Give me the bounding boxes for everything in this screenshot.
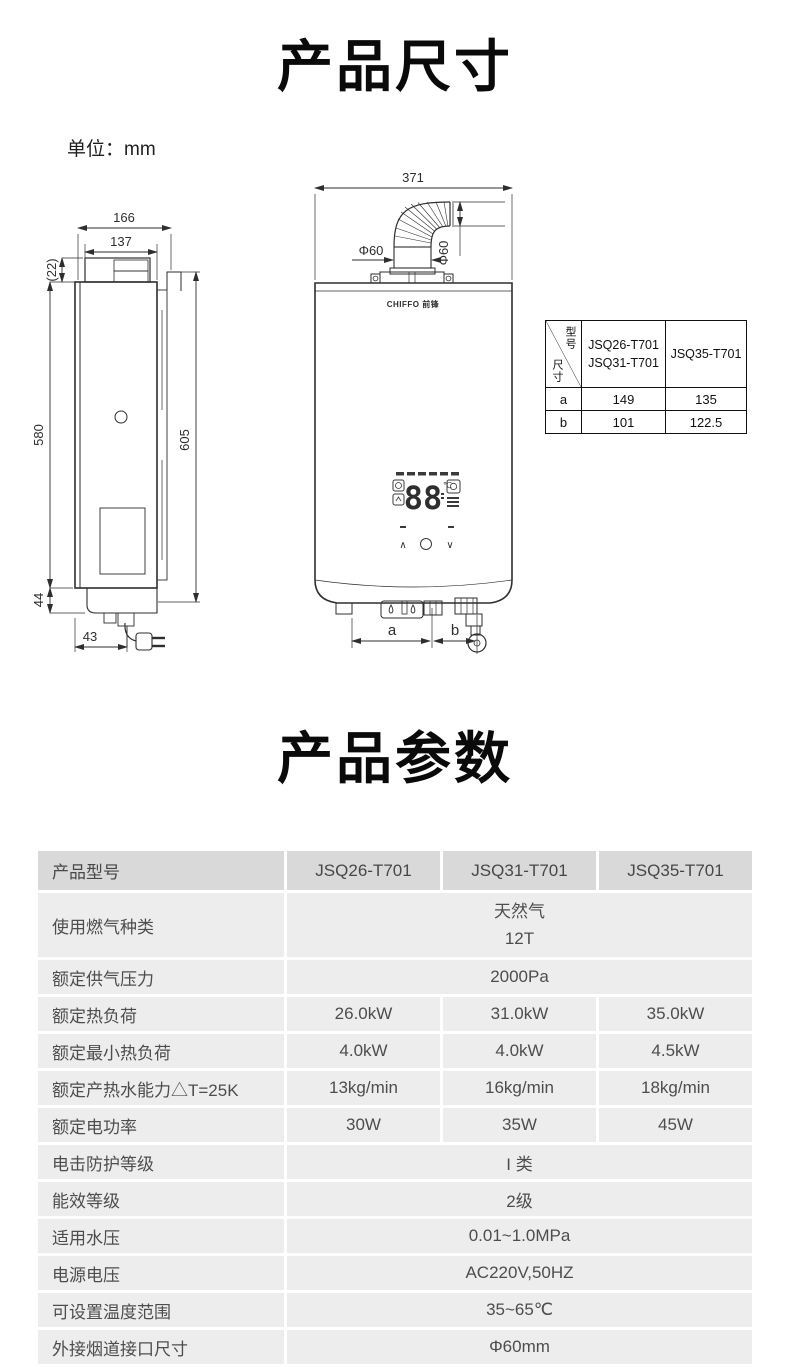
water-drop-icon bbox=[389, 605, 393, 613]
spec-header-label: 产品型号 bbox=[38, 851, 284, 890]
spec-row-label: 额定最小热负荷 bbox=[38, 1034, 284, 1068]
spec-row-value: Φ60mm bbox=[287, 1330, 752, 1364]
section-title-parameters: 产品参数 bbox=[0, 714, 790, 795]
spec-row-value: 4.0kW bbox=[443, 1034, 596, 1068]
flame-icon bbox=[393, 494, 404, 505]
spec-header-row: 产品型号 JSQ26-T701 JSQ31-T701 JSQ35-T701 bbox=[38, 851, 752, 890]
spec-row-electric-power: 额定电功率 30W 35W 45W bbox=[38, 1108, 752, 1142]
spec-row-flue-size: 外接烟道接口尺寸 Φ60mm bbox=[38, 1330, 752, 1364]
wall-bracket bbox=[167, 272, 181, 291]
spec-row-value: I 类 bbox=[287, 1145, 752, 1179]
model-name: JSQ35-T701 bbox=[666, 345, 746, 363]
row-value: 135 bbox=[666, 388, 747, 411]
gas-type-line: 12T bbox=[288, 925, 751, 952]
model-column-header: JSQ31-T701 bbox=[443, 851, 596, 890]
corner-model-label: 型号 bbox=[562, 326, 578, 350]
temperature-display: 88 bbox=[404, 479, 443, 517]
size-table-models-col1: JSQ26-T701 JSQ31-T701 bbox=[582, 321, 666, 388]
gas-inlet-fitting bbox=[118, 613, 134, 626]
row-label: a bbox=[546, 388, 582, 411]
temp-down-button: ∨ bbox=[446, 540, 453, 551]
dim-137-label: 137 bbox=[110, 234, 132, 249]
model-column-header: JSQ35-T701 bbox=[599, 851, 752, 890]
spec-row-value: 4.0kW bbox=[287, 1034, 440, 1068]
brand-logo: CHIFFO 前锋 bbox=[387, 299, 440, 309]
spec-row-min-heat-load: 额定最小热负荷 4.0kW 4.0kW 4.5kW bbox=[38, 1034, 752, 1068]
unit-label: 单位：mm bbox=[67, 134, 156, 161]
dim-a-label: a bbox=[388, 622, 397, 639]
spec-row-value: 天然气 12T bbox=[287, 893, 752, 957]
spec-row-label: 使用燃气种类 bbox=[38, 893, 284, 957]
product-detail-page: { "page": { "section1_title": "产品尺寸", "u… bbox=[0, 0, 790, 1362]
front-body bbox=[315, 283, 512, 603]
section-title-dimensions: 产品尺寸 bbox=[0, 22, 790, 103]
side-view-drawing: 166 137 (22) 580 605 44 43 bbox=[31, 210, 200, 652]
flue-diameter-v-label: Φ60 bbox=[436, 241, 451, 266]
spec-row-value: 18kg/min bbox=[599, 1071, 752, 1105]
flue-diameter-h-label: Φ60 bbox=[359, 243, 384, 258]
spec-row-value: 30W bbox=[287, 1108, 440, 1142]
spec-row-value: 2000Pa bbox=[287, 960, 752, 994]
side-knob-hole bbox=[115, 411, 127, 423]
spec-row-shock-protection: 电击防护等级 I 类 bbox=[38, 1145, 752, 1179]
spec-row-value: 0.01~1.0MPa bbox=[287, 1219, 752, 1253]
display-panel: 88 ℃ ∧ ∨ bbox=[393, 472, 460, 551]
dim-43-label: 43 bbox=[83, 629, 97, 644]
spec-row-value: 2级 bbox=[287, 1182, 752, 1216]
spec-row-value: 13kg/min bbox=[287, 1071, 440, 1105]
row-value: 101 bbox=[582, 411, 666, 434]
dim-22-label: (22) bbox=[44, 258, 59, 281]
front-view-drawing: 371 Φ60 Φ60 bbox=[315, 170, 512, 654]
spec-row-label: 适用水压 bbox=[38, 1219, 284, 1253]
spec-row-gas-pressure: 额定供气压力 2000Pa bbox=[38, 960, 752, 994]
spec-row-value: AC220V,50HZ bbox=[287, 1256, 752, 1290]
spec-row-supply-voltage: 电源电压 AC220V,50HZ bbox=[38, 1256, 752, 1290]
spec-row-label: 额定供气压力 bbox=[38, 960, 284, 994]
temp-up-button: ∧ bbox=[399, 540, 406, 551]
spec-row-gas-type: 使用燃气种类 天然气 12T bbox=[38, 893, 752, 957]
dim-166-label: 166 bbox=[113, 210, 135, 225]
spec-row-label: 额定热负荷 bbox=[38, 997, 284, 1031]
dim-b-label: b bbox=[451, 622, 459, 639]
model-name: JSQ26-T701 bbox=[582, 336, 665, 354]
power-plug bbox=[125, 623, 165, 650]
spec-row-value: 35.0kW bbox=[599, 997, 752, 1031]
side-label-plate bbox=[100, 508, 145, 574]
size-table-row-a: a 149 135 bbox=[546, 388, 747, 411]
spec-row-label: 可设置温度范围 bbox=[38, 1293, 284, 1327]
spec-row-label: 外接烟道接口尺寸 bbox=[38, 1330, 284, 1364]
row-value: 122.5 bbox=[666, 411, 747, 434]
gas-type-line: 天然气 bbox=[288, 898, 751, 925]
spec-table: 产品型号 JSQ26-T701 JSQ31-T701 JSQ35-T701 使用… bbox=[35, 848, 755, 1367]
spec-row-label: 能效等级 bbox=[38, 1182, 284, 1216]
spec-row-heat-load: 额定热负荷 26.0kW 31.0kW 35.0kW bbox=[38, 997, 752, 1031]
size-table-corner: 型号 尺寸 bbox=[546, 321, 582, 388]
size-table-row-b: b 101 122.5 bbox=[546, 411, 747, 434]
spec-row-value: 16kg/min bbox=[443, 1071, 596, 1105]
power-button bbox=[421, 539, 432, 550]
corner-size-label: 尺寸 bbox=[549, 359, 565, 383]
model-column-header: JSQ26-T701 bbox=[287, 851, 440, 890]
spec-row-temp-range: 可设置温度范围 35~65℃ bbox=[38, 1293, 752, 1327]
model-name: JSQ31-T701 bbox=[582, 354, 665, 372]
side-top-cap bbox=[85, 258, 150, 282]
spec-row-value: 35W bbox=[443, 1108, 596, 1142]
spec-row-label: 额定电功率 bbox=[38, 1108, 284, 1142]
spec-row-value: 31.0kW bbox=[443, 997, 596, 1031]
row-label: b bbox=[546, 411, 582, 434]
spec-row-label: 电击防护等级 bbox=[38, 1145, 284, 1179]
flue-flange bbox=[390, 268, 435, 274]
flue-pipe bbox=[394, 247, 431, 268]
size-table-models-col2: JSQ35-T701 bbox=[666, 321, 747, 388]
size-table: 型号 尺寸 JSQ26-T701 JSQ31-T701 JSQ35-T701 a… bbox=[545, 320, 747, 434]
water-drop-icon bbox=[411, 605, 415, 613]
priority-icon bbox=[393, 480, 404, 491]
spec-row-energy-efficiency: 能效等级 2级 bbox=[38, 1182, 752, 1216]
spec-row-water-pressure: 适用水压 0.01~1.0MPa bbox=[38, 1219, 752, 1253]
spec-row-value: 26.0kW bbox=[287, 997, 440, 1031]
spec-row-value: 35~65℃ bbox=[287, 1293, 752, 1327]
dim-371-label: 371 bbox=[402, 170, 424, 185]
dim-605-label: 605 bbox=[177, 429, 192, 451]
dim-44-label: 44 bbox=[31, 593, 46, 607]
spec-row-hot-water-capacity: 额定产热水能力△T=25K 13kg/min 16kg/min 18kg/min bbox=[38, 1071, 752, 1105]
dim-580-label: 580 bbox=[31, 424, 46, 446]
side-base bbox=[87, 588, 157, 613]
row-value: 149 bbox=[582, 388, 666, 411]
spec-row-value: 4.5kW bbox=[599, 1034, 752, 1068]
spec-row-label: 电源电压 bbox=[38, 1256, 284, 1290]
spec-row-label: 额定产热水能力△T=25K bbox=[38, 1071, 284, 1105]
gas-valve bbox=[455, 598, 486, 652]
spec-row-value: 45W bbox=[599, 1108, 752, 1142]
